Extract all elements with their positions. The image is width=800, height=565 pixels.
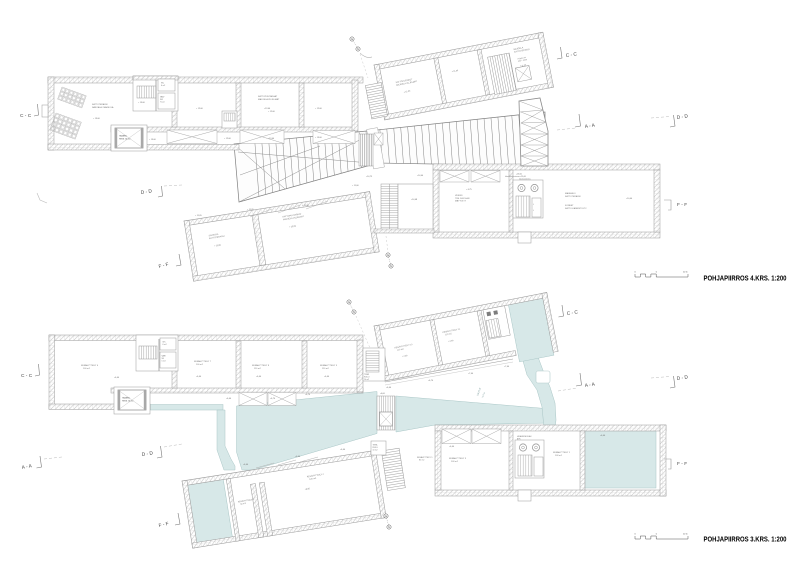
svg-text:+6,70: +6,70 <box>428 380 434 382</box>
svg-text:MAJOELA VILJELMÄT: MAJOELA VILJELMÄT <box>258 98 280 101</box>
svg-text:TAVARA: TAVARA <box>122 397 130 400</box>
svg-text:+14,75: +14,75 <box>366 176 373 178</box>
svg-text:KESÄHYTTEILY 7: KESÄHYTTEILY 7 <box>194 360 212 363</box>
svg-text:+ 11,00: + 11,00 <box>302 205 309 207</box>
svg-text:+ 12.00: + 12.00 <box>268 111 276 113</box>
svg-text:10 m2: 10 m2 <box>373 449 378 451</box>
svg-text:G: G <box>353 310 355 314</box>
svg-text:+14,00: +14,00 <box>417 175 424 177</box>
svg-text:HISSI 26 m2: HISSI 26 m2 <box>122 400 134 402</box>
svg-text:+ 13.00: + 13.00 <box>138 102 146 104</box>
svg-text:+6,00: +6,00 <box>114 377 120 379</box>
svg-text:+6,00: +6,00 <box>295 456 301 458</box>
svg-text:+ 13.00: + 13.00 <box>93 118 101 120</box>
svg-text:+6,00: +6,00 <box>243 464 249 466</box>
svg-text:+6,70: +6,70 <box>305 394 311 396</box>
svg-text:KATTO KANNISTI ETC: KATTO KANNISTI ETC <box>565 207 587 210</box>
svg-text:+10,00: +10,00 <box>626 198 633 200</box>
svg-text:KESÄHYTTEILY 8: KESÄHYTTEILY 8 <box>252 364 270 367</box>
svg-text:C - C: C - C <box>20 113 32 119</box>
svg-text:+ 12.00: + 12.00 <box>224 138 232 140</box>
svg-text:81 m2: 81 m2 <box>419 459 424 461</box>
svg-text:+6,00: +6,00 <box>449 446 455 448</box>
svg-text:F - F: F - F <box>677 461 687 467</box>
svg-text:KONEET: KONEET <box>565 205 574 207</box>
svg-text:100 m2: 100 m2 <box>196 364 204 366</box>
svg-text:10 m: 10 m <box>683 534 688 536</box>
svg-text:110 m2: 110 m2 <box>322 368 330 370</box>
svg-text:103 m2: 103 m2 <box>555 455 563 457</box>
svg-text:+ 11,00: + 11,00 <box>352 185 359 187</box>
svg-text:+ 11,05: + 11,05 <box>247 209 254 211</box>
svg-text:+6,00: +6,00 <box>256 376 262 378</box>
svg-text:+ 12.00: + 12.00 <box>315 108 323 110</box>
svg-text:+6,00: +6,00 <box>340 449 346 451</box>
svg-text:L: L <box>533 204 534 206</box>
svg-text:+ 6.75: + 6.75 <box>466 189 473 191</box>
svg-text:+14,08: +14,08 <box>411 199 418 201</box>
svg-text:POHJAPIIRROS 3.KRS. 1:200: POHJAPIIRROS 3.KRS. 1:200 <box>704 535 787 544</box>
svg-text:MAJATALO: MAJATALO <box>565 192 576 195</box>
svg-text:103 m2: 103 m2 <box>451 461 459 463</box>
svg-text:G: G <box>388 525 390 529</box>
svg-text:TRE JUKOLAN: TRE JUKOLAN <box>455 197 470 200</box>
svg-text:+ 12.00: + 12.00 <box>196 108 204 110</box>
svg-text:+6,00: +6,00 <box>380 393 385 395</box>
svg-text:10 m2: 10 m2 <box>364 379 369 381</box>
svg-text:NÄKÖALA / MAINIOLA: NÄKÖALA / MAINIOLA <box>92 106 114 109</box>
svg-text:+ 11,05: + 11,05 <box>195 215 202 217</box>
svg-text:6 m2: 6 m2 <box>161 85 165 87</box>
svg-text:TAVARA: TAVARA <box>119 135 127 138</box>
svg-text:C - C: C - C <box>21 373 33 379</box>
svg-text:+6,00: +6,00 <box>600 435 606 437</box>
svg-text:KATTOPUUTARHAT: KATTOPUUTARHAT <box>258 95 278 98</box>
svg-text:+6,70: +6,70 <box>270 398 276 400</box>
svg-text:+6,00: +6,00 <box>226 398 232 400</box>
svg-text:MÄYTÖLYT: MÄYTÖLYT <box>455 200 467 203</box>
svg-text:HISSI 26 m2: HISSI 26 m2 <box>119 138 131 140</box>
svg-text:KATTOTERASSI: KATTOTERASSI <box>92 103 108 106</box>
svg-text:katutasanteena: katutasanteena <box>519 178 531 181</box>
svg-text:+7,00: +7,00 <box>504 366 510 368</box>
svg-text:lakatenkorkeuteena: lakatenkorkeuteena <box>505 175 520 178</box>
svg-text:+6,00: +6,00 <box>386 387 392 389</box>
svg-text:KESÄHYTTEILY 3: KESÄHYTTEILY 3 <box>449 457 467 460</box>
svg-text:KESÄHYTTEILY 6: KESÄHYTTEILY 6 <box>81 364 99 367</box>
svg-text:POHJAPIIRROS 4.KRS. 1:200: POHJAPIIRROS 4.KRS. 1:200 <box>704 274 787 283</box>
svg-text:+13.00: +13.00 <box>264 108 271 110</box>
svg-text:KESÄHYTTEILY 1: KESÄHYTTEILY 1 <box>553 451 571 454</box>
svg-text:6 m2: 6 m2 <box>163 344 167 346</box>
svg-text:10 m: 10 m <box>683 272 688 274</box>
svg-text:+6,00: +6,00 <box>324 376 330 378</box>
svg-text:+ 13.00: + 13.00 <box>315 137 323 139</box>
svg-text:KESÄHYTTEILY 9: KESÄHYTTEILY 9 <box>320 364 338 367</box>
svg-text:+13.00: +13.00 <box>268 138 275 140</box>
svg-text:+6,00: +6,00 <box>196 376 202 378</box>
svg-text:+ 13.00: + 13.00 <box>149 139 157 141</box>
svg-text:+7,00: +7,00 <box>468 373 474 375</box>
svg-text:110 m2: 110 m2 <box>254 368 262 370</box>
svg-text:KATTOTERASSI: KATTOTERASSI <box>565 195 581 198</box>
svg-text:F - F: F - F <box>677 202 687 208</box>
svg-text:100 m2: 100 m2 <box>83 368 91 370</box>
svg-text:Tvust: Tvust <box>160 101 165 104</box>
svg-text:G: G <box>390 264 392 268</box>
svg-text:5 m2: 5 m2 <box>162 361 166 363</box>
svg-text:L: L <box>533 210 534 212</box>
svg-text:VESIKS: VESIKS <box>455 195 463 197</box>
